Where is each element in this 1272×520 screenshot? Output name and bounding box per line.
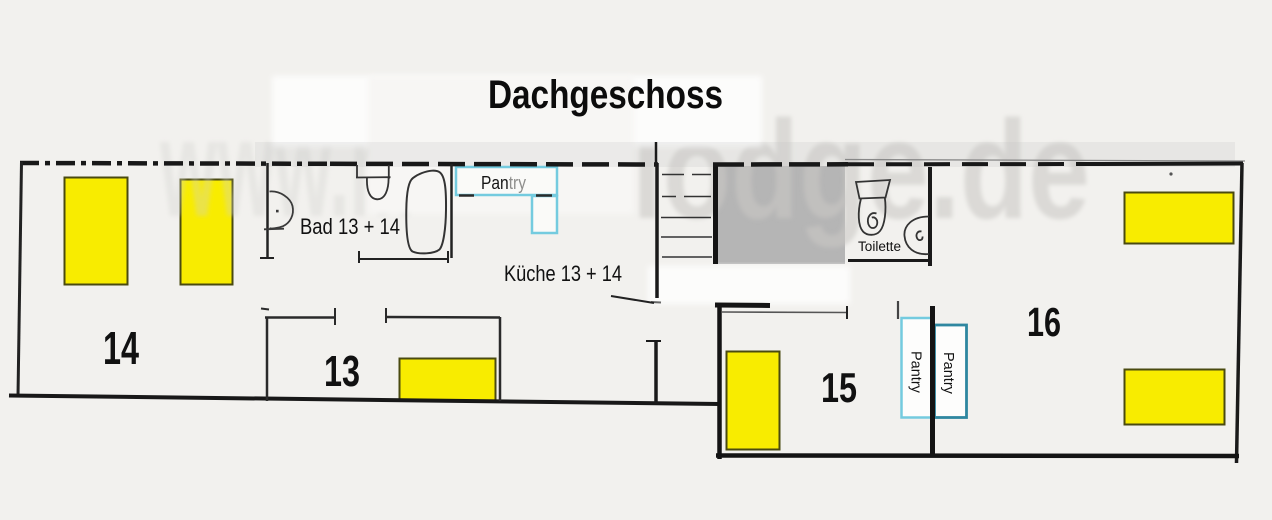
svg-text:16: 16 [1027, 299, 1061, 345]
svg-text:14: 14 [103, 322, 139, 374]
svg-text:13: 13 [324, 347, 360, 396]
svg-text:Pantry: Pantry [908, 351, 924, 394]
svg-text:Pantry: Pantry [940, 352, 956, 395]
svg-text:Dachgeschoss: Dachgeschoss [488, 73, 723, 117]
svg-text:Bad 13 + 14: Bad 13 + 14 [300, 214, 400, 239]
svg-text:Pantry: Pantry [481, 173, 526, 193]
svg-text:Küche 13 + 14: Küche 13 + 14 [504, 261, 622, 286]
svg-text:Toilette: Toilette [858, 239, 901, 254]
svg-text:15: 15 [821, 364, 857, 411]
